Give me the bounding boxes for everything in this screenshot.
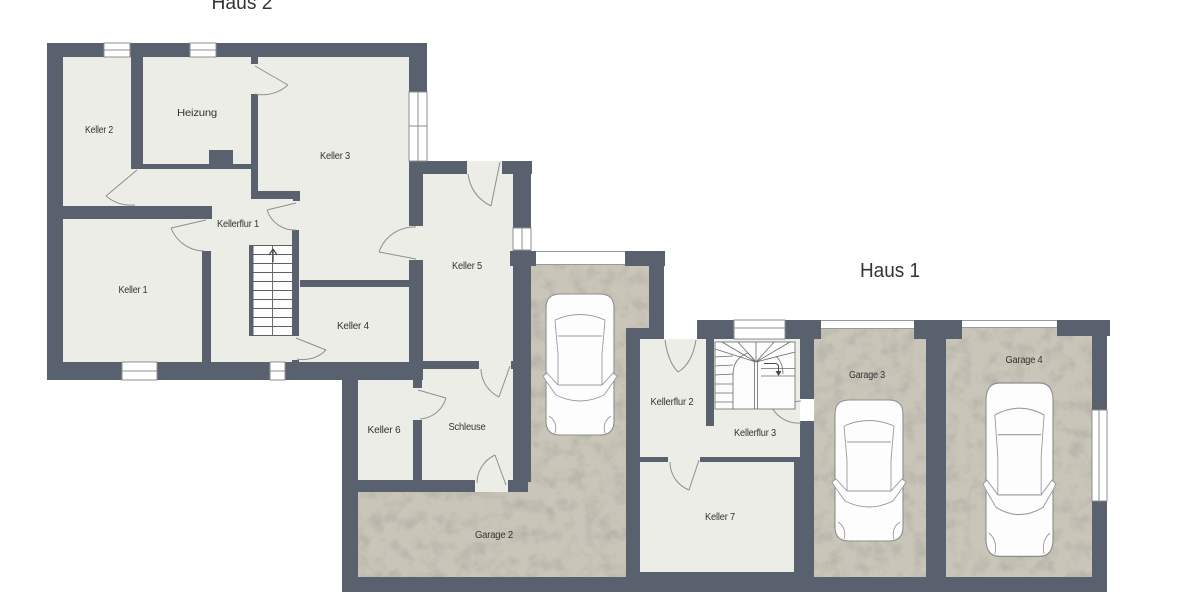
svg-text:Keller 7: Keller 7 (705, 512, 736, 523)
svg-text:Kellerflur 1: Kellerflur 1 (217, 219, 260, 230)
svg-text:Garage 3: Garage 3 (849, 370, 886, 381)
svg-text:Garage 4: Garage 4 (1006, 355, 1044, 366)
svg-text:Garage 2: Garage 2 (475, 530, 514, 541)
svg-text:Kellerflur 2: Kellerflur 2 (651, 397, 695, 408)
svg-text:Keller 2: Keller 2 (85, 125, 114, 136)
svg-text:Keller 5: Keller 5 (452, 261, 483, 272)
svg-text:Schleuse: Schleuse (449, 422, 487, 433)
svg-text:Keller 3: Keller 3 (320, 151, 351, 162)
svg-text:Kellerflur 3: Kellerflur 3 (734, 428, 777, 439)
svg-text:Keller 6: Keller 6 (368, 425, 402, 436)
svg-text:Keller 4: Keller 4 (337, 321, 370, 332)
svg-text:Haus 2: Haus 2 (212, 0, 273, 14)
svg-text:Heizung: Heizung (177, 108, 217, 119)
svg-text:Keller 1: Keller 1 (119, 285, 149, 296)
svg-text:Haus 1: Haus 1 (860, 260, 920, 282)
